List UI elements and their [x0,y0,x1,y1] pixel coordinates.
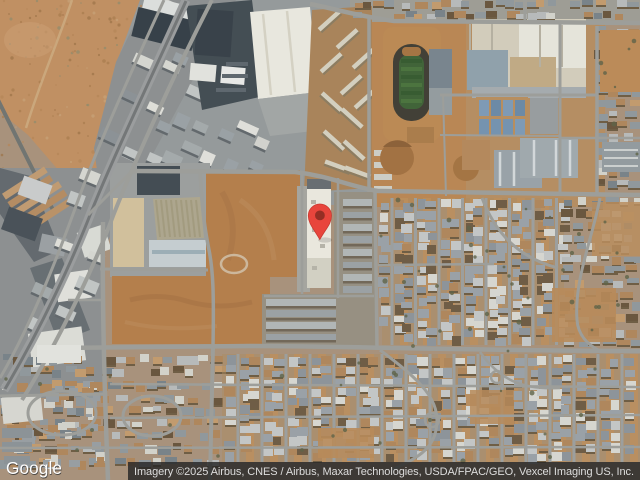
svg-text:Imagery ©2025 Airbus, CNES / A: Imagery ©2025 Airbus, CNES / Airbus, Max… [134,466,634,478]
svg-text:Google: Google [6,458,62,478]
